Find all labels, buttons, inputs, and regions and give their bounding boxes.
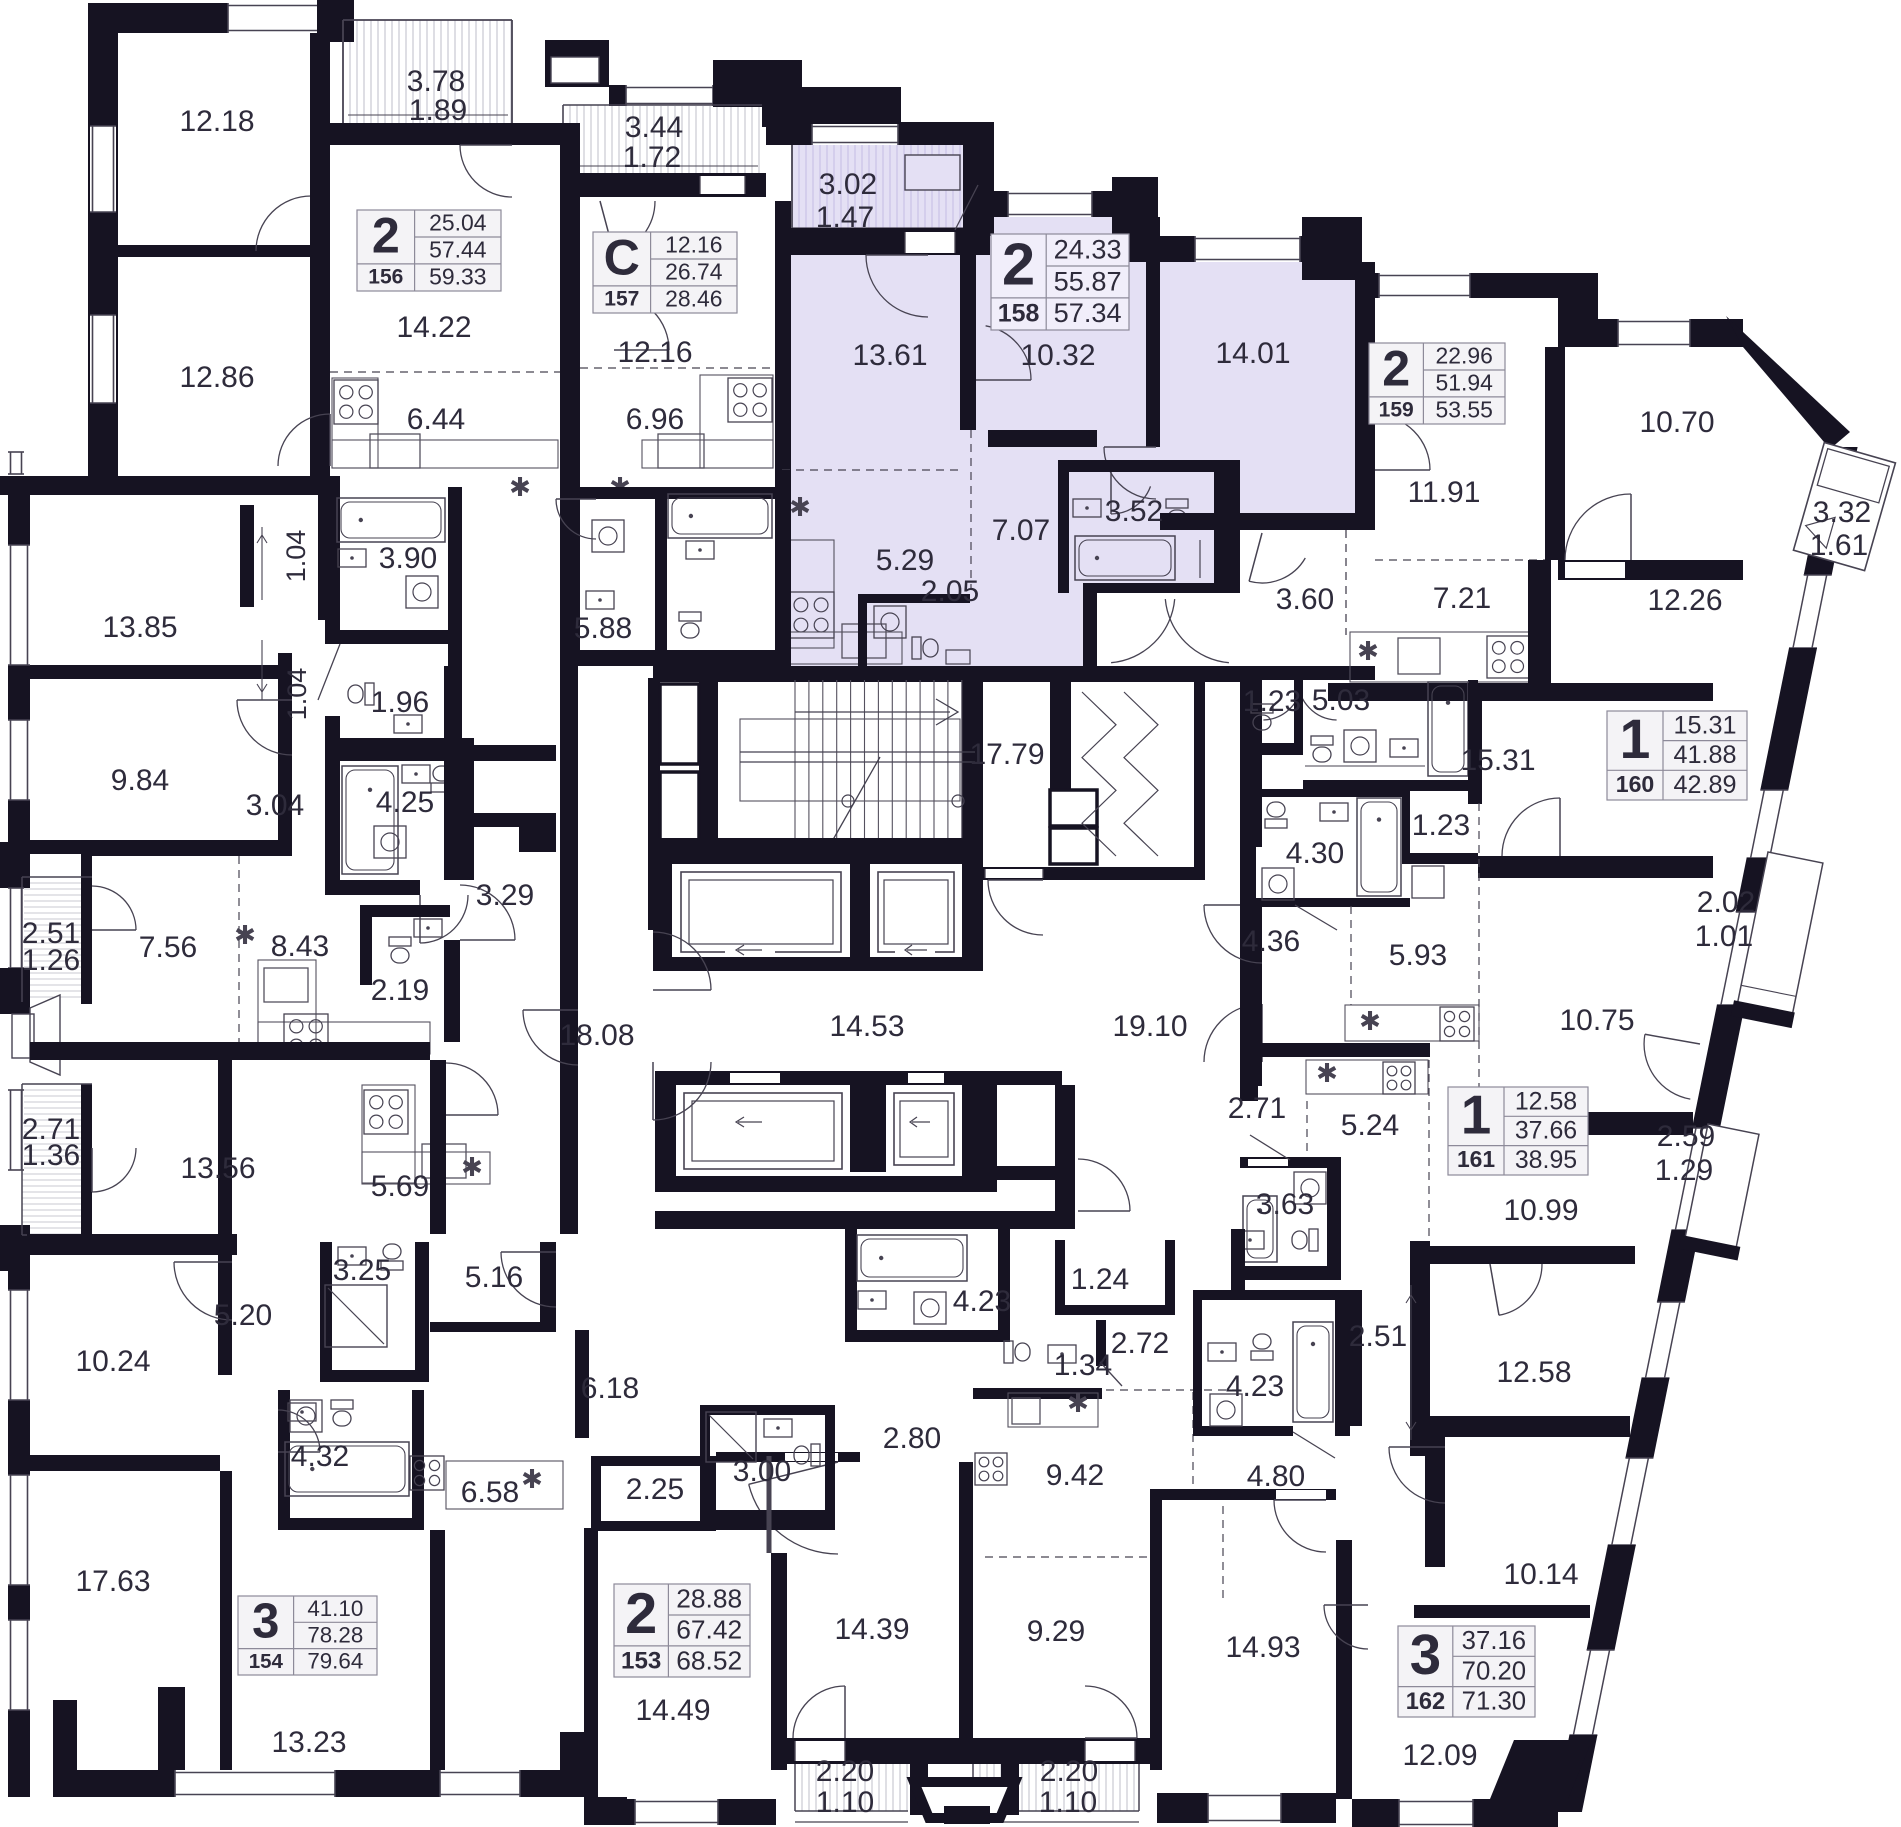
svg-text:2.20: 2.20 (1040, 1755, 1098, 1788)
svg-text:2.02: 2.02 (1697, 886, 1755, 919)
svg-text:8.43: 8.43 (271, 930, 329, 963)
svg-text:162: 162 (1406, 1689, 1445, 1715)
svg-text:1.23: 1.23 (1412, 809, 1470, 842)
svg-text:4.30: 4.30 (1286, 837, 1344, 870)
svg-text:57.44: 57.44 (429, 237, 487, 263)
svg-text:6.18: 6.18 (581, 1372, 639, 1405)
svg-text:42.89: 42.89 (1673, 771, 1736, 799)
svg-text:59.33: 59.33 (429, 263, 486, 289)
svg-text:3: 3 (1410, 1623, 1441, 1686)
svg-text:4.23: 4.23 (1226, 1370, 1284, 1403)
svg-text:✱: ✱ (521, 1464, 543, 1494)
svg-text:51.94: 51.94 (1436, 370, 1494, 396)
svg-text:4.25: 4.25 (376, 786, 434, 819)
svg-text:3.52: 3.52 (1105, 495, 1163, 528)
svg-text:3: 3 (252, 1595, 279, 1649)
svg-text:26.74: 26.74 (665, 259, 723, 285)
svg-text:2: 2 (625, 1582, 657, 1646)
svg-text:4.36: 4.36 (1242, 925, 1300, 958)
svg-text:41.88: 41.88 (1673, 741, 1736, 769)
svg-text:2: 2 (372, 208, 400, 264)
svg-text:14.53: 14.53 (829, 1010, 904, 1043)
svg-text:1.23: 1.23 (1243, 685, 1301, 718)
svg-text:5.93: 5.93 (1389, 939, 1447, 972)
svg-text:✱: ✱ (461, 1152, 483, 1182)
svg-text:37.16: 37.16 (1462, 1627, 1526, 1655)
svg-text:13.23: 13.23 (271, 1726, 346, 1759)
svg-text:4.23: 4.23 (953, 1285, 1011, 1318)
svg-text:67.42: 67.42 (676, 1615, 742, 1645)
svg-text:15.31: 15.31 (1673, 712, 1736, 740)
svg-text:3.04: 3.04 (246, 789, 304, 822)
svg-text:160: 160 (1616, 771, 1655, 797)
svg-text:2: 2 (1002, 231, 1035, 298)
svg-text:13.61: 13.61 (852, 339, 927, 372)
svg-text:57.34: 57.34 (1054, 297, 1122, 328)
svg-text:14.93: 14.93 (1225, 1631, 1300, 1664)
svg-text:10.32: 10.32 (1020, 339, 1095, 372)
svg-text:3.29: 3.29 (476, 879, 534, 912)
svg-text:12.26: 12.26 (1647, 584, 1722, 617)
svg-text:2: 2 (1382, 341, 1410, 397)
svg-text:3.02: 3.02 (819, 168, 877, 201)
svg-text:2.71: 2.71 (1228, 1092, 1286, 1125)
svg-text:10.99: 10.99 (1503, 1194, 1578, 1227)
svg-text:10.24: 10.24 (75, 1345, 150, 1378)
svg-text:17.63: 17.63 (75, 1565, 150, 1598)
svg-text:5.20: 5.20 (214, 1299, 272, 1332)
svg-text:1.29: 1.29 (1655, 1154, 1713, 1187)
svg-text:79.64: 79.64 (307, 1649, 363, 1674)
svg-text:1.04: 1.04 (282, 668, 312, 721)
svg-text:1.10: 1.10 (1039, 1786, 1097, 1819)
svg-text:✱: ✱ (1316, 1058, 1338, 1088)
svg-text:11.91: 11.91 (1408, 476, 1481, 509)
svg-text:15.31: 15.31 (1460, 744, 1535, 777)
svg-text:7.56: 7.56 (139, 931, 197, 964)
svg-text:1: 1 (1620, 708, 1651, 770)
svg-text:154: 154 (249, 1650, 284, 1673)
svg-text:161: 161 (1457, 1146, 1495, 1172)
svg-text:6.96: 6.96 (626, 403, 684, 436)
svg-text:5.03: 5.03 (1312, 684, 1370, 717)
svg-text:12.86: 12.86 (179, 361, 254, 394)
svg-text:37.66: 37.66 (1515, 1117, 1577, 1145)
svg-text:✱: ✱ (509, 472, 531, 502)
svg-text:53.55: 53.55 (1436, 396, 1493, 422)
svg-text:14.01: 14.01 (1215, 337, 1290, 370)
svg-text:1: 1 (1461, 1084, 1491, 1145)
svg-text:✱: ✱ (789, 492, 811, 522)
svg-text:✱: ✱ (1067, 1388, 1089, 1418)
svg-text:70.20: 70.20 (1462, 1657, 1526, 1685)
svg-text:4.80: 4.80 (1247, 1460, 1305, 1493)
svg-text:5.24: 5.24 (1341, 1109, 1399, 1142)
svg-text:158: 158 (998, 299, 1040, 327)
svg-text:5.88: 5.88 (574, 612, 632, 645)
svg-text:1.89: 1.89 (409, 94, 467, 127)
svg-text:3.60: 3.60 (1276, 583, 1334, 616)
svg-text:1.36: 1.36 (22, 1139, 80, 1172)
svg-text:2.05: 2.05 (921, 575, 979, 608)
svg-text:3.44: 3.44 (625, 111, 683, 144)
svg-text:6.58: 6.58 (461, 1476, 519, 1509)
svg-text:6.44: 6.44 (407, 403, 465, 436)
svg-text:1.61: 1.61 (1810, 529, 1868, 562)
svg-text:1.47: 1.47 (816, 201, 874, 234)
svg-text:22.96: 22.96 (1436, 343, 1493, 369)
svg-text:41.10: 41.10 (307, 1596, 363, 1621)
svg-text:13.85: 13.85 (102, 611, 177, 644)
svg-text:9.42: 9.42 (1046, 1459, 1104, 1492)
svg-text:10.70: 10.70 (1639, 406, 1714, 439)
svg-text:1.10: 1.10 (816, 1786, 874, 1819)
svg-text:2.72: 2.72 (1111, 1327, 1169, 1360)
svg-text:1.04: 1.04 (281, 530, 311, 583)
svg-text:68.52: 68.52 (676, 1646, 742, 1676)
svg-text:12.58: 12.58 (1496, 1356, 1571, 1389)
svg-text:24.33: 24.33 (1054, 233, 1122, 264)
svg-text:5.16: 5.16 (465, 1261, 523, 1294)
svg-text:18.08: 18.08 (559, 1019, 634, 1052)
svg-text:1.26: 1.26 (22, 944, 80, 977)
svg-text:✱: ✱ (1359, 1006, 1381, 1036)
svg-text:78.28: 78.28 (307, 1622, 363, 1647)
svg-text:153: 153 (621, 1648, 661, 1675)
svg-text:3.32: 3.32 (1813, 496, 1871, 529)
svg-text:4.32: 4.32 (291, 1440, 349, 1473)
svg-text:✱: ✱ (234, 920, 256, 950)
svg-text:28.46: 28.46 (665, 285, 722, 311)
svg-text:1.34: 1.34 (1054, 1349, 1112, 1382)
svg-text:7.07: 7.07 (992, 514, 1050, 547)
svg-text:12.16: 12.16 (665, 232, 722, 258)
svg-text:1.96: 1.96 (371, 686, 429, 719)
svg-text:71.30: 71.30 (1462, 1688, 1526, 1716)
svg-text:55.87: 55.87 (1054, 265, 1122, 296)
svg-text:157: 157 (604, 288, 639, 311)
svg-text:14.39: 14.39 (834, 1613, 909, 1646)
svg-text:12.58: 12.58 (1515, 1087, 1577, 1115)
svg-text:159: 159 (1379, 399, 1414, 422)
svg-text:3.63: 3.63 (1256, 1188, 1314, 1221)
svg-text:12.16: 12.16 (617, 336, 692, 369)
svg-text:25.04: 25.04 (429, 210, 487, 236)
svg-text:12.18: 12.18 (179, 105, 254, 138)
svg-text:3.90: 3.90 (379, 542, 437, 575)
svg-text:2.51: 2.51 (1349, 1320, 1407, 1353)
svg-text:12.09: 12.09 (1402, 1739, 1477, 1772)
svg-text:10.75: 10.75 (1559, 1004, 1634, 1037)
svg-text:13.56: 13.56 (180, 1152, 255, 1185)
svg-text:1.24: 1.24 (1071, 1263, 1129, 1296)
svg-text:14.49: 14.49 (635, 1694, 710, 1727)
svg-text:3.00: 3.00 (733, 1455, 791, 1488)
svg-text:2.59: 2.59 (1657, 1120, 1715, 1153)
svg-text:2.25: 2.25 (626, 1473, 684, 1506)
svg-text:С: С (604, 230, 640, 286)
svg-text:5.29: 5.29 (876, 544, 934, 577)
svg-text:9.29: 9.29 (1027, 1615, 1085, 1648)
svg-text:156: 156 (368, 266, 403, 289)
svg-text:✱: ✱ (1357, 636, 1379, 666)
svg-text:5.69: 5.69 (371, 1170, 429, 1203)
svg-text:19.10: 19.10 (1112, 1010, 1187, 1043)
svg-text:1.01: 1.01 (1695, 920, 1753, 953)
svg-text:28.88: 28.88 (676, 1584, 742, 1614)
svg-text:2.20: 2.20 (816, 1755, 874, 1788)
svg-text:2.80: 2.80 (883, 1422, 941, 1455)
svg-text:17.79: 17.79 (969, 738, 1044, 771)
svg-text:38.95: 38.95 (1515, 1146, 1577, 1174)
svg-text:14.22: 14.22 (396, 311, 471, 344)
svg-text:2.19: 2.19 (371, 974, 429, 1007)
svg-text:3.25: 3.25 (333, 1254, 391, 1287)
svg-text:10.14: 10.14 (1503, 1558, 1578, 1591)
svg-text:9.84: 9.84 (111, 764, 169, 797)
svg-text:1.72: 1.72 (623, 141, 681, 174)
svg-text:7.21: 7.21 (1433, 582, 1491, 615)
